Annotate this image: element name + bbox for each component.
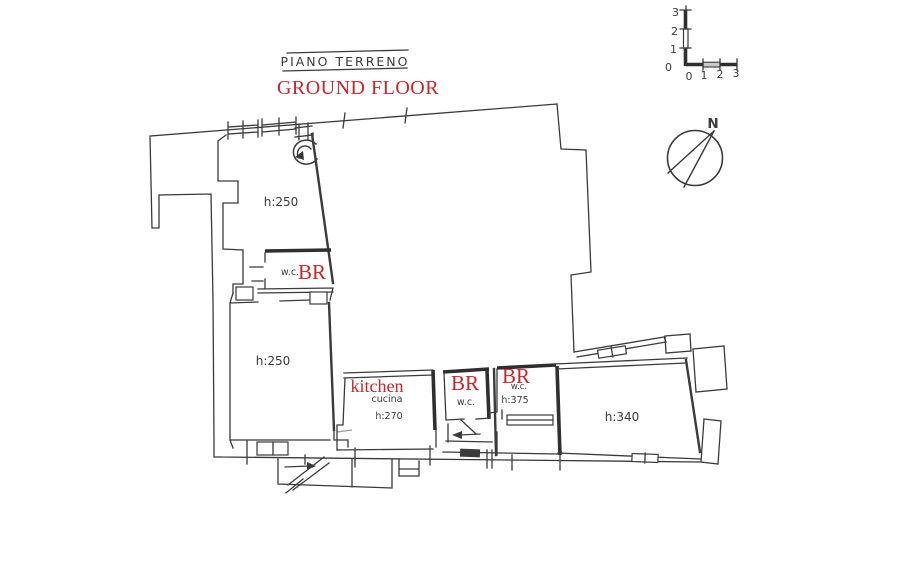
scale-v-label-3: 3 xyxy=(672,6,679,19)
right-wc-right-wall xyxy=(557,366,560,455)
label-lower-left-height: h:250 xyxy=(256,354,291,368)
top-wall-openings xyxy=(228,108,407,140)
scale-h-label-1: 1 xyxy=(701,69,708,82)
label-right-room-height: h:340 xyxy=(605,410,640,424)
right-room-right-wall xyxy=(686,360,700,452)
label-upper-left-height: h:250 xyxy=(264,195,299,209)
room-lower-left-walls xyxy=(230,292,352,455)
annex-tilted-square xyxy=(693,346,727,392)
plan-title-italian: PIANO TERRENO xyxy=(281,54,410,69)
scale-v-label-0: 0 xyxy=(665,61,672,74)
upper-wc-top-wall xyxy=(265,250,331,251)
scale-bar: 3 2 1 0 0 1 2 3 xyxy=(665,6,740,83)
north-compass: N xyxy=(668,116,723,187)
floor-plan-drawing: PIANO TERRENO GROUND FLOOR 3 2 1 0 0 1 2… xyxy=(0,0,900,565)
lower-left-right-wall xyxy=(329,303,334,430)
middle-wc-right-wall xyxy=(487,370,489,419)
title-block: PIANO TERRENO GROUND FLOOR xyxy=(277,50,439,99)
scale-v-label-2: 2 xyxy=(671,25,678,38)
scale-h-label-3: 3 xyxy=(733,67,740,80)
label-upper-wc: w.c. xyxy=(281,267,299,278)
wall-tick-marks xyxy=(247,441,560,470)
annotation-kitchen: kitchen xyxy=(351,376,404,396)
annotation-right-bathroom: BR xyxy=(502,364,530,388)
scale-v-label-1: 1 xyxy=(670,43,677,56)
bottom-step xyxy=(399,459,419,476)
title-overline xyxy=(287,50,408,53)
entrance-porch xyxy=(278,455,392,493)
porch-outline xyxy=(278,455,392,488)
annex-bottom-rect xyxy=(701,419,721,464)
room-labels: h:250 w.c. h:250 cucina h:270 w.c. w.c. … xyxy=(256,195,640,424)
annotation-middle-bathroom: BR xyxy=(451,371,479,395)
window-symbol xyxy=(632,453,658,464)
annotation-upper-bathroom: BR xyxy=(298,260,326,284)
column-symbol xyxy=(295,123,312,140)
door-arrow-icon xyxy=(452,431,480,439)
floor-plan-page: PIANO TERRENO GROUND FLOOR 3 2 1 0 0 1 2… xyxy=(0,0,900,565)
compass-circle-icon xyxy=(668,131,723,186)
sketch-dash xyxy=(337,430,352,432)
label-kitchen-height: h:270 xyxy=(375,411,402,422)
building-outline xyxy=(150,104,700,462)
annex-small-square xyxy=(665,334,691,353)
scale-h-label-0: 0 xyxy=(686,70,693,83)
plan-title-english: GROUND FLOOR xyxy=(277,77,439,99)
window-symbol xyxy=(460,449,480,458)
wall-pier xyxy=(310,292,327,304)
room-right-walls xyxy=(555,334,727,464)
scale-h-label-2: 2 xyxy=(717,68,724,81)
wall-pier xyxy=(236,287,253,300)
outer-boundary-line xyxy=(150,104,700,462)
entrance-arrow-icon xyxy=(285,462,316,470)
kitchen-right-wall xyxy=(433,370,435,430)
right-room-top-wall xyxy=(555,358,687,369)
label-right-wc-height: h:375 xyxy=(501,395,528,406)
compass-north-label: N xyxy=(707,116,718,132)
scale-v-seg-white xyxy=(684,29,689,48)
label-middle-wc: w.c. xyxy=(457,397,475,408)
scale-h-seg-gray xyxy=(703,62,720,67)
